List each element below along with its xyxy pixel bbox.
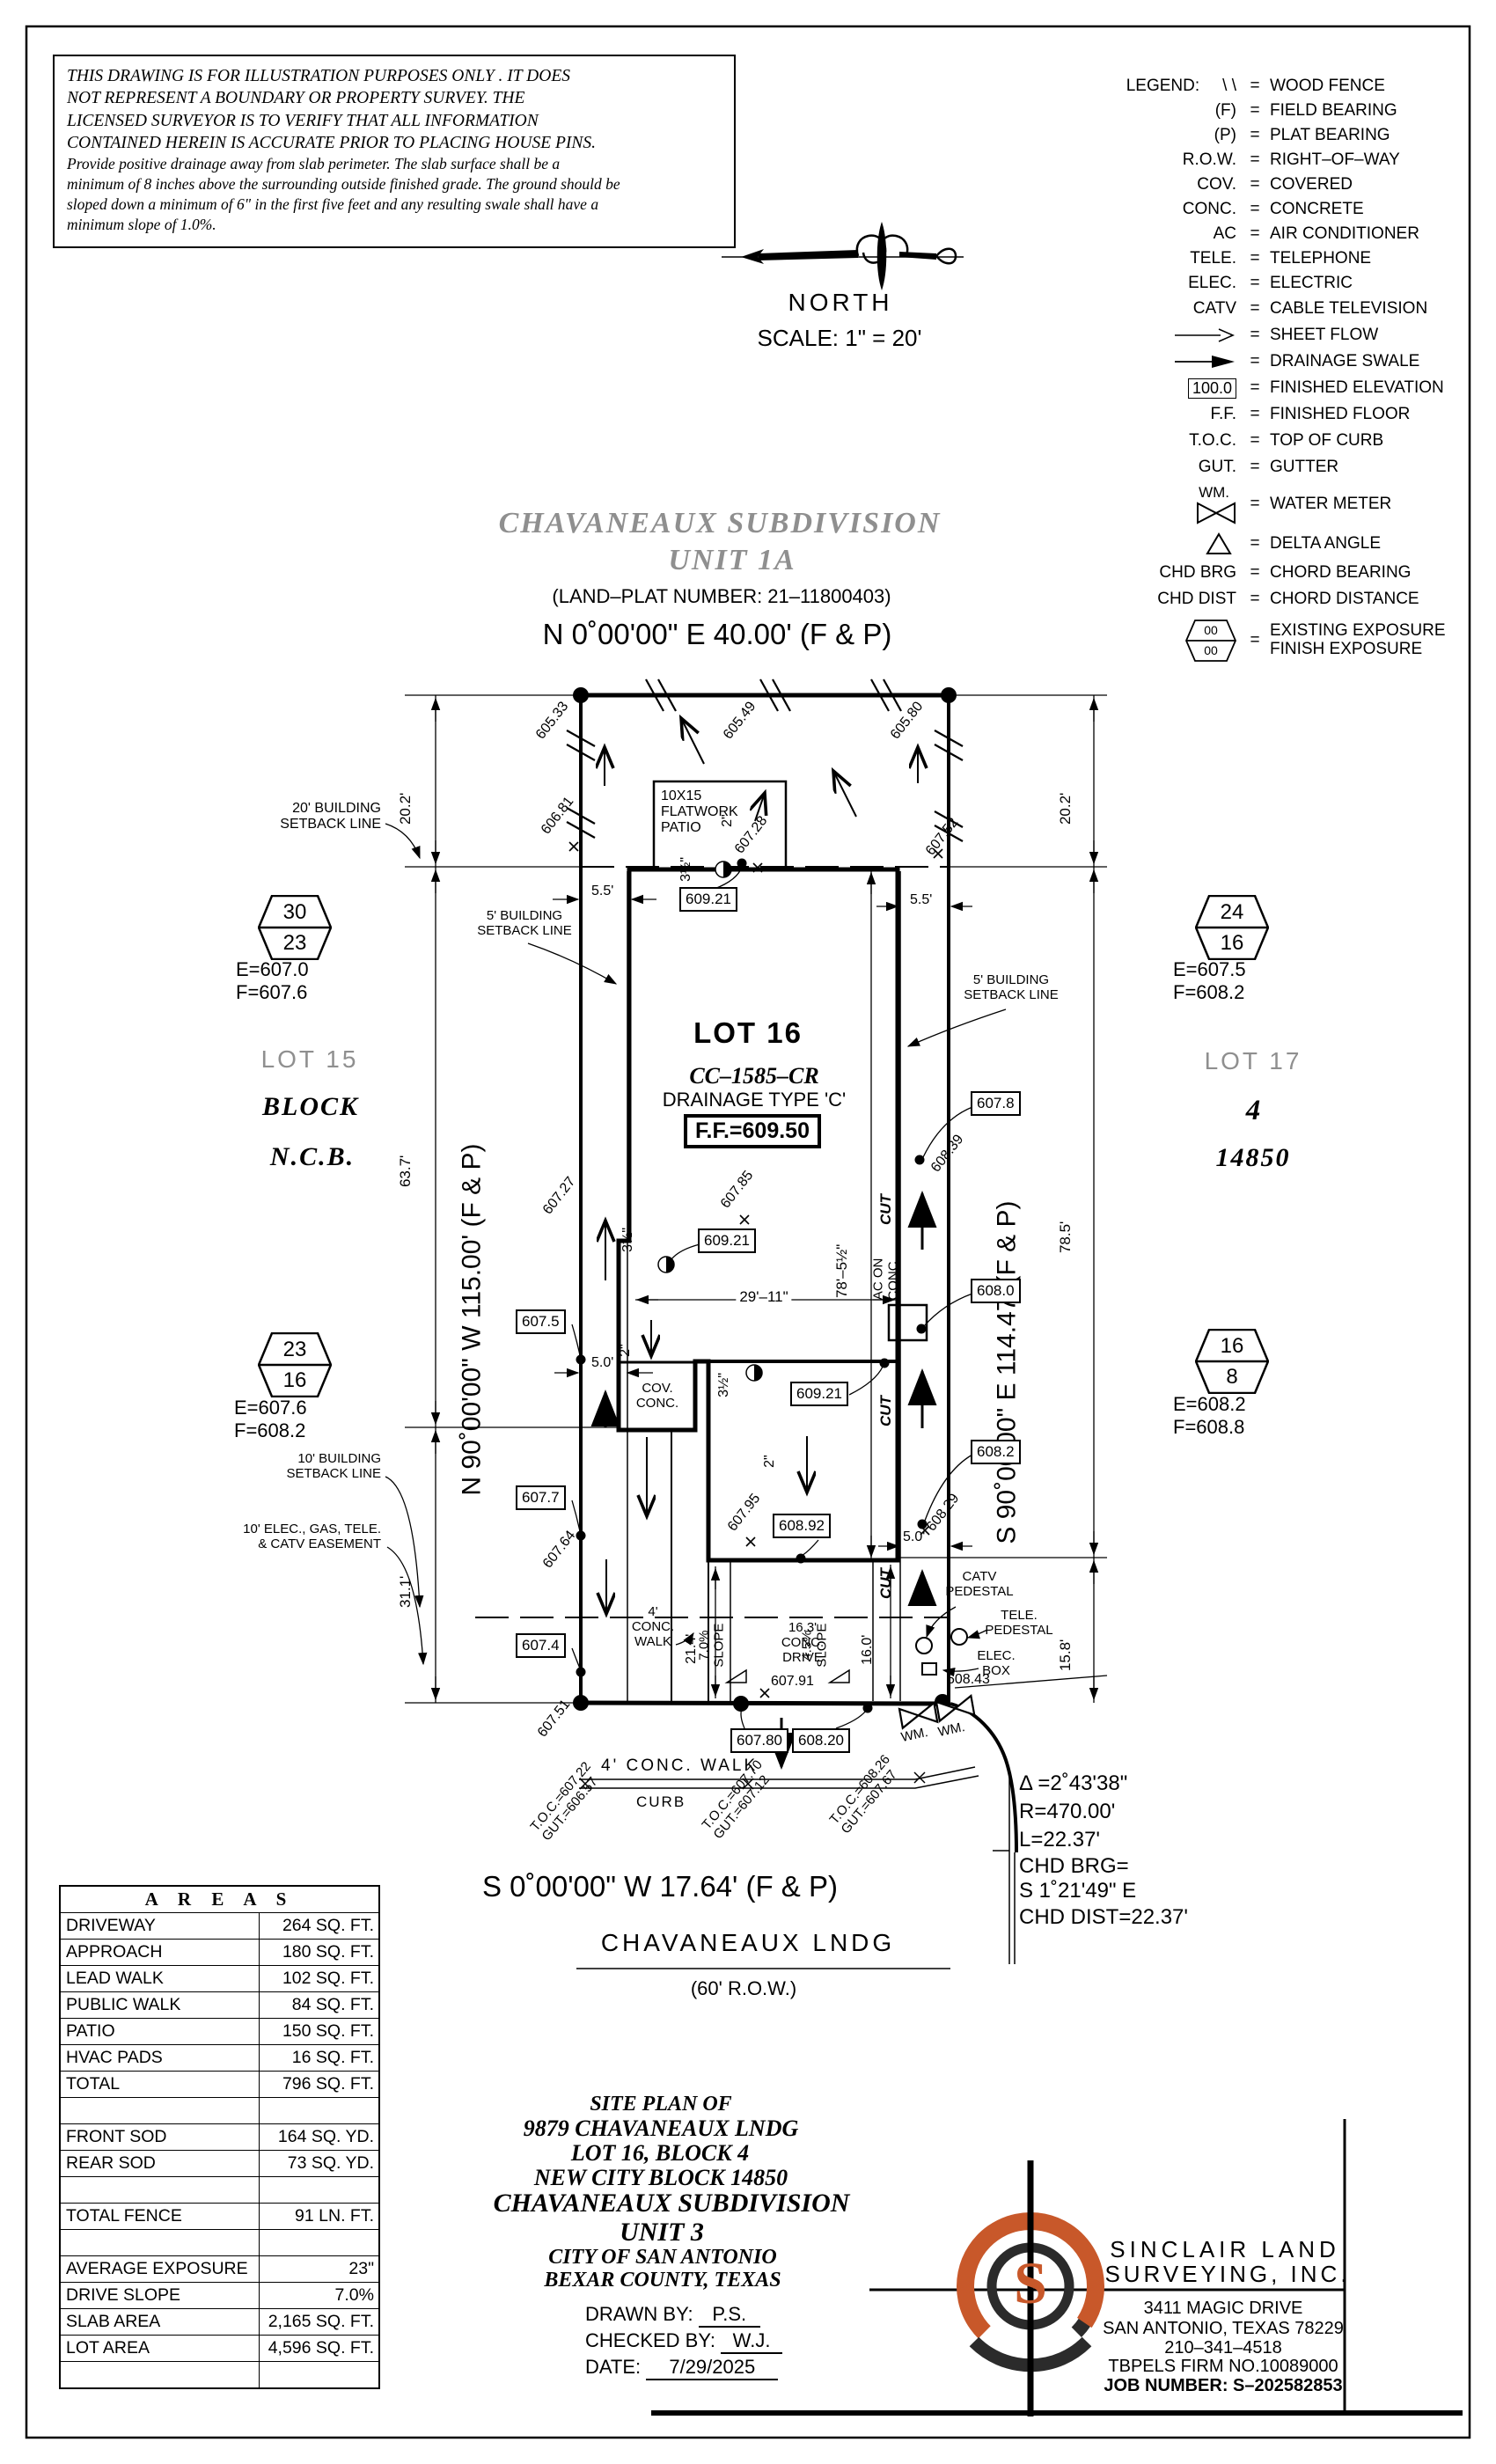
table-row: PATIO150 SQ. FT.	[61, 2019, 378, 2045]
curve-chord-bearing: S 1˚21'49" E	[1019, 1880, 1136, 1903]
drainage-note-line: sloped down a minimum of 6" in the first…	[67, 194, 722, 215]
lot-code: CC–1585–CR	[689, 1063, 818, 1089]
existing-exposure: E=607.5	[1173, 959, 1246, 981]
firm-name-1: SINCLAIR LAND	[1110, 2237, 1340, 2262]
dim-5-5-right: 5.5'	[906, 892, 935, 908]
table-row: APPROACH180 SQ. FT.	[61, 1940, 378, 1966]
exposure-symbol: 23 16	[258, 1332, 332, 1397]
drainage-swale-icon	[1094, 353, 1240, 370]
drive-slope-right: 4.5%SLOPE	[800, 1624, 830, 1668]
elevation-callout: 607.4	[516, 1633, 566, 1658]
house-footprint	[619, 781, 927, 1560]
spot-elevation: 607.91	[771, 1674, 814, 1690]
cut-label: CUT	[877, 1194, 894, 1225]
dim-5-5-left: 5.5'	[588, 884, 617, 899]
drive-slope-left: 7.0%SLOPE	[697, 1624, 727, 1668]
disclaimer-line: LICENSED SURVEYOR IS TO VERIFY THAT ALL …	[67, 110, 722, 132]
curve-chord-bearing-label: CHD BRG=	[1019, 1855, 1129, 1879]
drainage-note-line: minimum slope of 1.0%.	[67, 215, 722, 235]
legend-sym: (P)	[1094, 126, 1240, 145]
titleblock-county: BEXAR COUNTY, TEXAS	[544, 2269, 781, 2292]
titleblock-lot-block: LOT 16, BLOCK 4	[571, 2140, 749, 2166]
scale-label: SCALE: 1" = 20'	[758, 326, 922, 351]
dim-5-0-left: 5.0'	[591, 1355, 613, 1371]
public-walk-label: 4' CONC. WALK	[601, 1756, 758, 1775]
disclaimer-line: CONTAINED HEREIN IS ACCURATE PRIOR TO PL…	[67, 132, 722, 154]
firm-address-2: SAN ANTONIO, TEXAS 78229	[1103, 2319, 1344, 2338]
site-plan-sheet: THIS DRAWING IS FOR ILLUSTRATION PURPOSE…	[0, 0, 1496, 2464]
elevation-callout: 609.21	[698, 1228, 756, 1253]
legend-desc: FINISH EXPOSURE	[1270, 641, 1463, 659]
sheet-flow-icon	[1094, 326, 1240, 344]
legend-title: LEGEND:	[1126, 77, 1199, 96]
legend-desc: EXISTING EXPOSURE	[1270, 622, 1463, 641]
lot-drainage: DRAINAGE TYPE 'C'	[663, 1089, 846, 1111]
dim-20-2-left: 20.2'	[397, 793, 414, 825]
spot-elevation: 608.43	[947, 1672, 990, 1688]
firm-logo-letter: S	[1014, 2249, 1047, 2316]
titleblock-subdivision: CHAVANEAUX SUBDIVISION	[494, 2189, 850, 2218]
north-label: NORTH	[788, 289, 892, 316]
legend-sym: CHD BRG	[1094, 563, 1240, 583]
drainage-note-line: Provide positive drainage away from slab…	[67, 154, 722, 174]
finish-exposure: F=608.8	[1173, 1417, 1244, 1439]
cut-label: CUT	[877, 1568, 894, 1599]
neighbor-ncb-right: 14850	[1216, 1143, 1291, 1173]
elevation-callout: 608.0	[971, 1279, 1021, 1303]
table-row: PUBLIC WALK84 SQ. FT.	[61, 1992, 378, 2019]
finish-exposure: F=608.2	[1173, 982, 1244, 1004]
firm-name-2: SURVEYING, INC.	[1104, 2262, 1350, 2287]
setback-5-label-left: 5' BUILDINGSETBACK LINE	[475, 909, 574, 939]
neighbor-block-left: BLOCK	[262, 1092, 359, 1122]
existing-exposure: E=608.2	[1173, 1394, 1246, 1416]
water-meter-icon: WM.	[1094, 484, 1240, 524]
lot-title: LOT 16	[693, 1017, 803, 1050]
firm-number: TBPELS FIRM NO.10089000	[1108, 2357, 1338, 2376]
bearing-east: S 90˚00'00" E 114.47' (F & P)	[992, 1201, 1022, 1544]
patio-label: 10X15FLATWORKPATIO	[661, 788, 738, 836]
curb-label: CURB	[636, 1793, 686, 1810]
exposure-hex-icon: 00 00	[1094, 620, 1240, 662]
cut-label: CUT	[877, 1396, 894, 1426]
curve-chord-distance: CHD DIST=22.37'	[1019, 1906, 1188, 1930]
dim-3-5in: 3½"	[678, 857, 694, 882]
dim-5-0-right: 5.0'	[903, 1529, 925, 1545]
legend-desc: WOOD FENCE	[1270, 77, 1463, 96]
dim-3-5in: 3½"	[716, 1373, 732, 1397]
bearing-south: S 0˚00'00" W 17.64' (F & P)	[482, 1871, 838, 1903]
neighbor-lot-right: LOT 17	[1205, 1047, 1302, 1074]
checked-by: CHECKED BY: W.J.	[585, 2330, 782, 2354]
dim-21-4: 21.4'	[684, 1634, 700, 1664]
finished-floor-callout: F.F.=609.50	[684, 1114, 821, 1148]
legend-sym: F.F.	[1094, 405, 1240, 424]
titleblock-city: CITY OF SAN ANTONIO	[548, 2246, 776, 2270]
areas-title: A R E A S	[61, 1887, 378, 1913]
elevation-callout: 608.20	[792, 1728, 850, 1753]
curve-length: L=22.37'	[1019, 1829, 1100, 1852]
table-row: HVAC PADS16 SQ. FT.	[61, 2045, 378, 2072]
curve-delta: Δ =2˚43'38"	[1019, 1772, 1127, 1796]
legend: LEGEND: \ \ = WOOD FENCE (F)=FIELD BEARI…	[1094, 74, 1463, 669]
elevation-callout: 609.21	[679, 887, 737, 912]
disclaimer-line: THIS DRAWING IS FOR ILLUSTRATION PURPOSE…	[67, 65, 722, 87]
legend-sym: (F)	[1094, 101, 1240, 121]
table-row: REAR SOD73 SQ. YD.	[61, 2151, 378, 2177]
table-row	[61, 2362, 378, 2387]
table-row	[61, 2177, 378, 2204]
tele-pedestal-label: TELE.PEDESTAL	[985, 1609, 1052, 1639]
disclaimer-note: THIS DRAWING IS FOR ILLUSTRATION PURPOSE…	[53, 55, 736, 248]
legend-sym: CATV	[1094, 299, 1240, 319]
disclaimer-line: NOT REPRESENT A BOUNDARY OR PROPERTY SUR…	[67, 87, 722, 109]
subdivision-title: CHAVANEAUX SUBDIVISION	[499, 507, 942, 540]
elevation-callout: 607.7	[516, 1485, 566, 1510]
wood-fence-icon: \ \	[1222, 77, 1236, 96]
equals: =	[1240, 77, 1270, 96]
bearing-north: N 0˚00'00" E 40.00' (F & P)	[543, 619, 892, 651]
legend-sym: CHD DIST	[1094, 590, 1240, 609]
legend-sym: CONC.	[1094, 200, 1240, 219]
covered-concrete-label: COV.CONC.	[631, 1382, 684, 1412]
dim-15-8: 15.8'	[1057, 1639, 1074, 1671]
legend-sym: ELEC.	[1094, 274, 1240, 293]
date: DATE: 7/29/2025	[585, 2357, 778, 2380]
neighbor-block-right: 4	[1246, 1095, 1261, 1127]
ac-pad	[889, 1305, 927, 1340]
exposure-symbol: 30 23	[258, 895, 332, 960]
table-row: LOT AREA4,596 SQ. FT.	[61, 2336, 378, 2362]
elevation-callout: 607.8	[971, 1091, 1021, 1116]
legend-sym: R.O.W.	[1094, 150, 1240, 170]
bearing-west: N 90˚00'00" W 115.00' (F & P)	[457, 1144, 487, 1496]
dim-2in: 2"	[618, 1344, 634, 1357]
firm-address-1: 3411 MAGIC DRIVE	[1144, 2299, 1303, 2318]
setback-10-label: 10' BUILDINGSETBACK LINE	[249, 1452, 381, 1482]
table-row	[61, 2098, 378, 2124]
dim-2in: 2"	[762, 1455, 778, 1468]
legend-sym: AC	[1094, 224, 1240, 244]
elevation-callout: 608.92	[773, 1514, 831, 1538]
legend-sym: TELE.	[1094, 249, 1240, 268]
table-row: DRIVEWAY264 SQ. FT.	[61, 1913, 378, 1940]
dim-3-5in: 3½"	[620, 1228, 636, 1252]
table-row: FRONT SOD164 SQ. YD.	[61, 2124, 378, 2151]
legend-row: LEGEND: \ \ = WOOD FENCE	[1094, 74, 1463, 99]
table-row: TOTAL796 SQ. FT.	[61, 2072, 378, 2098]
plat-number: (LAND–PLAT NUMBER: 21–11800403)	[552, 586, 891, 608]
dim-78-5h: 78'–5½"	[833, 1244, 850, 1298]
neighbor-ncb-left: N.C.B.	[270, 1142, 355, 1172]
street-name: CHAVANEAUX LNDG	[601, 1929, 895, 1956]
subdivision-unit: UNIT 1A	[668, 544, 796, 577]
catv-pedestal-label: CATVPEDESTAL	[945, 1570, 1013, 1600]
table-row: AVERAGE EXPOSURE23"	[61, 2256, 378, 2283]
dim-20-2-right: 20.2'	[1057, 793, 1074, 825]
exposure-symbol: 24 16	[1195, 895, 1269, 960]
firm-phone: 210–341–4518	[1164, 2338, 1281, 2358]
street-row: (60' R.O.W.)	[691, 1978, 796, 2000]
table-row: SLAB AREA2,165 SQ. FT.	[61, 2309, 378, 2336]
ac-on-conc-label: AC ONCONC.	[871, 1258, 901, 1300]
lead-walk-label: 4'CONC.WALK	[632, 1605, 674, 1649]
neighbor-lot-left: LOT 15	[261, 1045, 359, 1073]
titleblock-address: 9879 CHAVANEAUX LNDG	[524, 2116, 799, 2141]
delta-angle-icon	[1094, 532, 1240, 556]
titleblock-ncb: NEW CITY BLOCK 14850	[534, 2165, 788, 2190]
drainage-note-line: minimum of 8 inches above the surroundin…	[67, 174, 722, 194]
north-arrow-ornament	[722, 222, 964, 290]
legend-sym: T.O.C.	[1094, 431, 1240, 451]
table-row: DRIVE SLOPE7.0%	[61, 2283, 378, 2309]
legend-sym: GUT.	[1094, 458, 1240, 477]
dim-29-11: 29'–11"	[736, 1288, 791, 1305]
easement-label: 10' ELEC., GAS, TELE.& CATV EASEMENT	[211, 1522, 381, 1552]
exposure-symbol: 16 8	[1195, 1329, 1269, 1394]
finished-elevation-icon: 100.0	[1188, 378, 1236, 399]
drawn-by: DRAWN BY: P.S.	[585, 2304, 760, 2328]
legend-sym: COV.	[1094, 175, 1240, 194]
setback-20-label: 20' BUILDINGSETBACK LINE	[249, 801, 381, 832]
curve-radius: R=470.00'	[1019, 1800, 1115, 1824]
titleblock-site-plan: SITE PLAN OF	[590, 2093, 731, 2116]
finish-exposure: F=607.6	[236, 982, 307, 1004]
dim-31-1: 31.1'	[397, 1576, 414, 1608]
table-row: TOTAL FENCE91 LN. FT.	[61, 2204, 378, 2230]
elevation-callout: 607.5	[516, 1309, 566, 1334]
areas-table: A R E A S DRIVEWAY264 SQ. FT. APPROACH18…	[59, 1885, 380, 2389]
titleblock-unit: UNIT 3	[620, 2218, 704, 2248]
existing-exposure: E=607.6	[234, 1397, 307, 1419]
job-number: JOB NUMBER: S–202582853	[1104, 2376, 1342, 2395]
table-row: LEAD WALK102 SQ. FT.	[61, 1966, 378, 1992]
elevation-callout: 608.2	[971, 1440, 1021, 1464]
dim-2in: 2"	[720, 814, 736, 827]
existing-exposure: E=607.0	[236, 959, 309, 981]
setback-5-label-right: 5' BUILDINGSETBACK LINE	[959, 973, 1063, 1003]
elevation-callout: 609.21	[790, 1382, 848, 1406]
dim-63-7: 63.7'	[397, 1155, 414, 1187]
elevation-callout: 607.80	[730, 1728, 788, 1753]
table-row	[61, 2230, 378, 2256]
dim-78-5: 78.5'	[1057, 1221, 1074, 1253]
dim-16-0: 16.0'	[860, 1635, 876, 1665]
finish-exposure: F=608.2	[234, 1420, 305, 1442]
